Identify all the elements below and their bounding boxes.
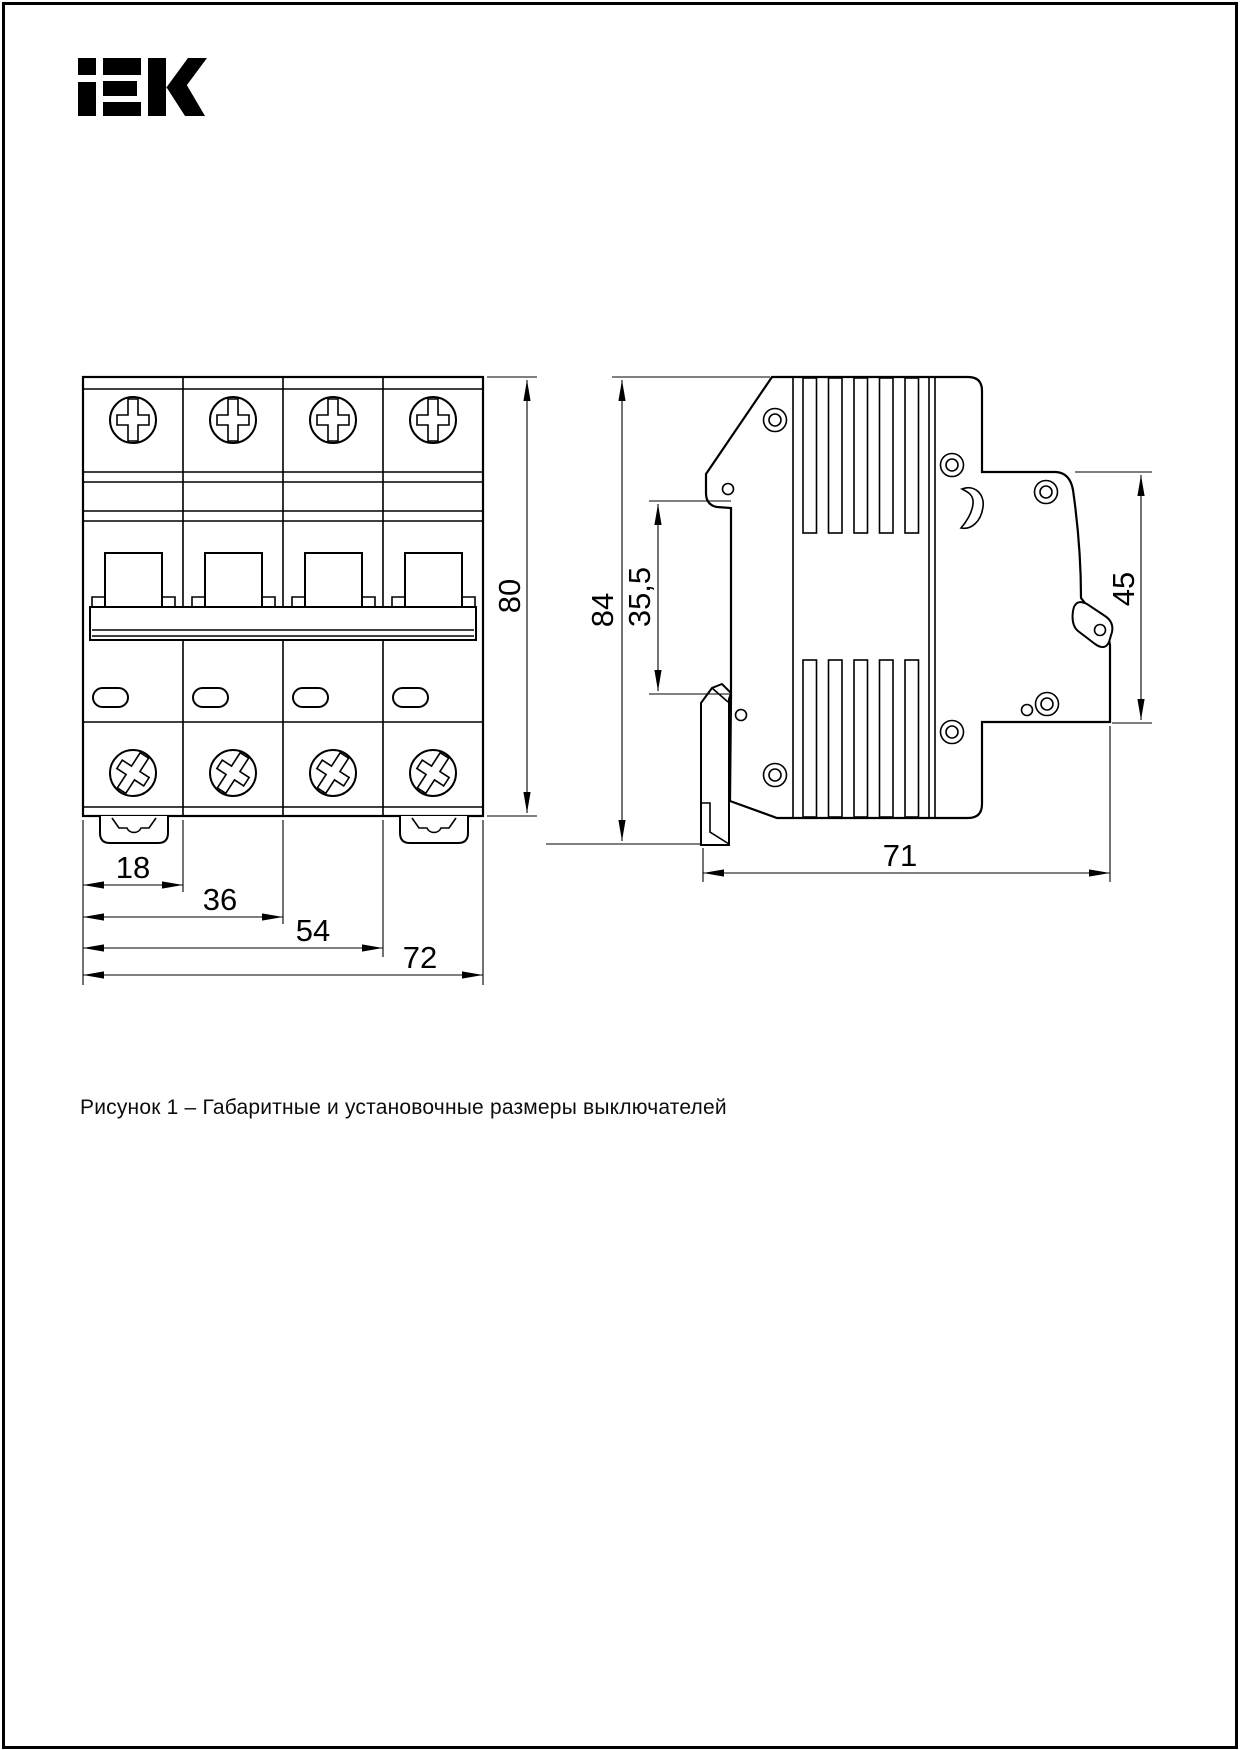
dim-84: 84 (585, 593, 620, 627)
dim-71: 71 (883, 838, 917, 873)
side-view: 84 35,5 45 71 (546, 377, 1152, 882)
din-clip-left (100, 816, 168, 843)
dim-80: 80 (492, 579, 527, 613)
dim-36: 36 (203, 882, 237, 917)
dim-54: 54 (296, 913, 330, 948)
dim-45: 45 (1106, 572, 1141, 606)
toggle-tie-bar (90, 607, 476, 640)
dim-35-5: 35,5 (622, 567, 657, 627)
front-width-dimensions: 18 36 54 72 (83, 820, 483, 985)
din-clips-front (100, 816, 468, 843)
dim-72: 72 (403, 940, 437, 975)
technical-drawing: 18 36 54 72 80 (0, 0, 1240, 1750)
document-page: 18 36 54 72 80 (0, 0, 1240, 1750)
dim-18: 18 (116, 850, 150, 885)
din-rail-dimension: 35,5 (622, 501, 731, 694)
front-view: 18 36 54 72 80 (83, 377, 537, 985)
din-clip-right (400, 816, 468, 843)
front-height-dimension: 80 (487, 377, 537, 816)
figure-caption: Рисунок 1 – Габаритные и установочные ра… (80, 1096, 727, 1120)
din-clip-side (701, 684, 731, 845)
